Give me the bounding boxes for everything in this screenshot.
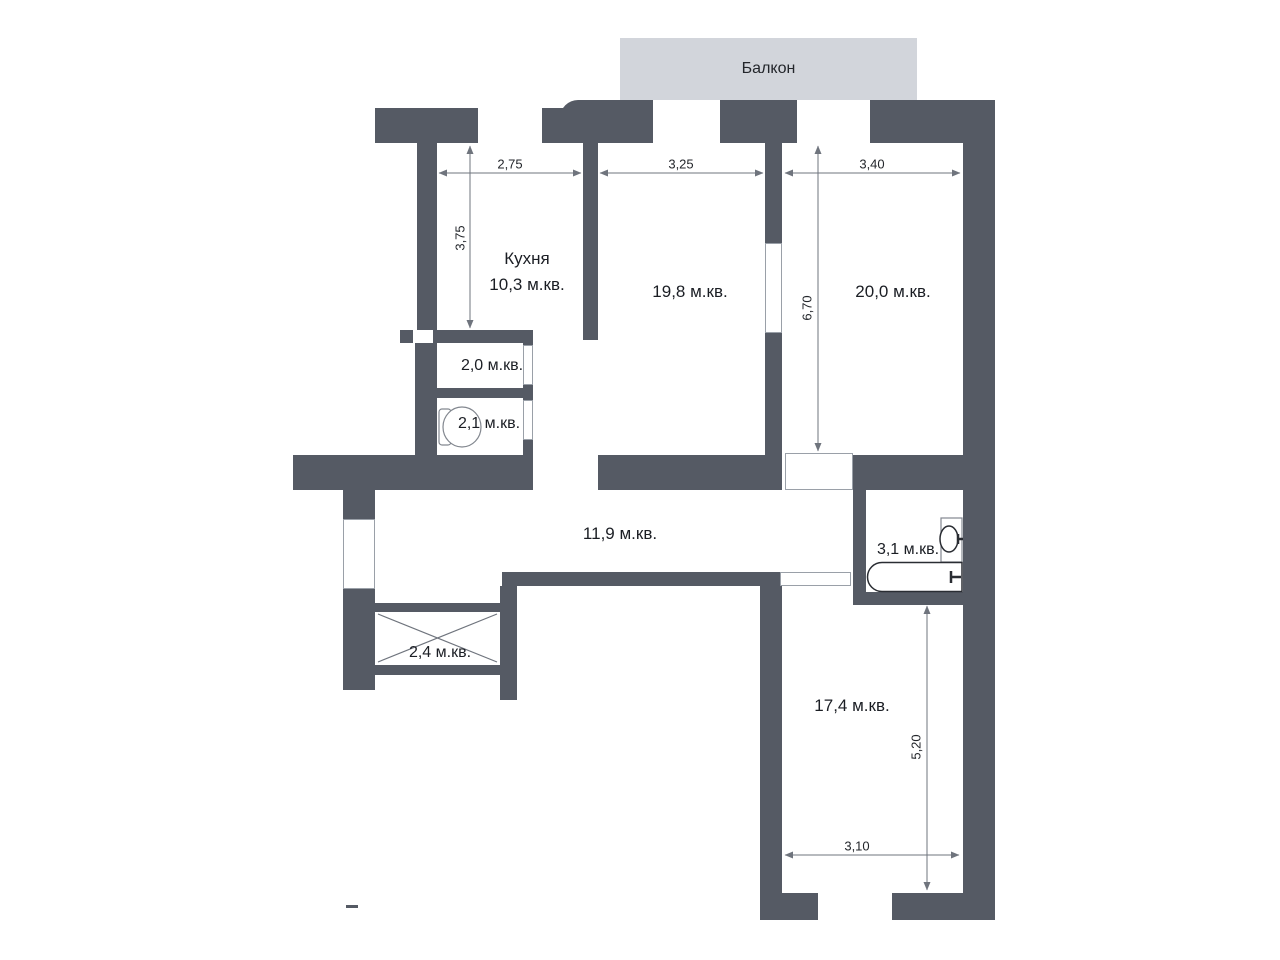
room-label-kitchen-name: Кухня bbox=[489, 246, 564, 272]
dimension-label-kitchen-width: 2,75 bbox=[497, 157, 522, 172]
plan-annotations bbox=[0, 0, 1280, 960]
dimension-label-bedroom2-depth: 5,20 bbox=[909, 734, 924, 759]
room-label-bathroom-area: 3,1 м.кв. bbox=[877, 537, 939, 563]
bathtub-icon bbox=[868, 563, 963, 592]
room-label-living-area: 19,8 м.кв. bbox=[652, 279, 727, 305]
dimension-label-kitchen-depth: 3,75 bbox=[453, 225, 468, 250]
room-label-closet-area: 2,4 м.кв. bbox=[409, 640, 471, 666]
sink-icon bbox=[940, 518, 963, 562]
room-label-bedroom-area: 20,0 м.кв. bbox=[855, 279, 930, 305]
room-label-hallway-area: 11,9 м.кв. bbox=[583, 521, 657, 547]
room-label-bedroom2-area: 17,4 м.кв. bbox=[814, 693, 889, 719]
room-label-wc-area: 2,1 м.кв. bbox=[458, 411, 520, 437]
room-label-storage-small-area: 2,0 м.кв. bbox=[461, 353, 523, 379]
room-label-kitchen: Кухня 10,3 м.кв. bbox=[489, 246, 564, 298]
dimension-label-living-width: 3,25 bbox=[668, 157, 693, 172]
room-label-kitchen-area: 10,3 м.кв. bbox=[489, 272, 564, 298]
dimension-label-bedroom2-width: 3,10 bbox=[844, 839, 869, 854]
dimension-label-bedroom-width: 3,40 bbox=[859, 157, 884, 172]
dimension-label-bedroom-depth: 6,70 bbox=[800, 295, 815, 320]
floor-plan: Балкон bbox=[0, 0, 1280, 960]
